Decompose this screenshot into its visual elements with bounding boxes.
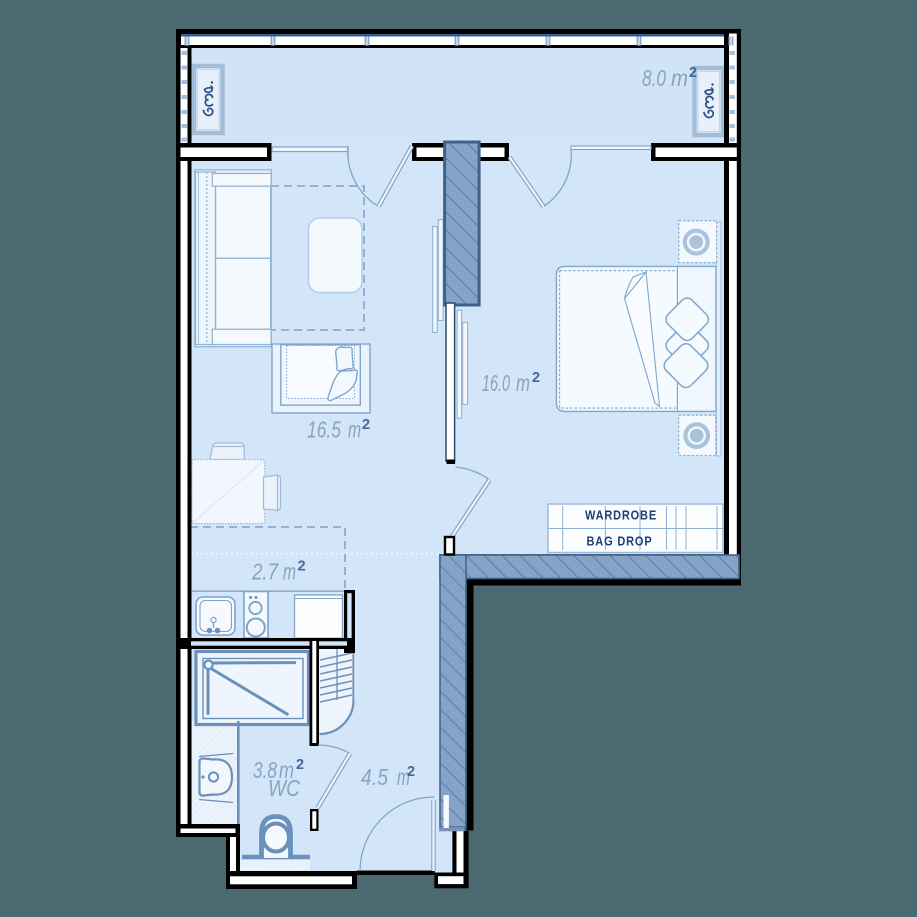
svg-text:m: m	[348, 417, 361, 443]
svg-text:BAG DROP: BAG DROP	[587, 534, 653, 549]
svg-text:16.0: 16.0	[482, 370, 510, 396]
svg-text:16.5: 16.5	[307, 417, 341, 443]
svg-text:2: 2	[407, 764, 415, 780]
svg-text:2: 2	[689, 65, 697, 81]
svg-text:2: 2	[362, 417, 370, 433]
svg-text:WARDROBE: WARDROBE	[585, 508, 657, 523]
svg-text:2: 2	[298, 559, 306, 575]
svg-text:2: 2	[532, 370, 540, 386]
svg-text:m: m	[671, 65, 688, 91]
svg-text:m: m	[516, 370, 530, 396]
svg-text:2.7: 2.7	[251, 559, 279, 585]
svg-text:2: 2	[296, 757, 304, 773]
svg-text:m: m	[283, 559, 296, 585]
svg-text:WC: WC	[268, 775, 300, 801]
svg-text:4.5: 4.5	[361, 764, 388, 790]
svg-text:8.0: 8.0	[642, 65, 666, 91]
